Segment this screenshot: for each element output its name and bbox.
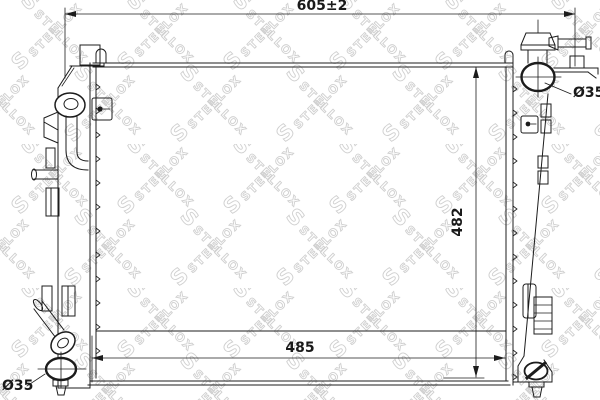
port-bottom-left-label: Ø35 (2, 378, 33, 394)
mount-hole-dot (97, 106, 102, 111)
port-top-right-label: Ø35 (573, 85, 600, 101)
radiator-technical-drawing: SSTELLOX SSTELLOX SSTELLOX SSTELLOX SSTE… (0, 0, 600, 400)
inlet-flange-ring (55, 93, 85, 117)
core-width-label: 485 (285, 340, 314, 356)
core-height-label: 482 (450, 207, 466, 236)
overall-width-label: 605±2 (297, 0, 348, 14)
mount-hole-dot-right (526, 122, 531, 127)
